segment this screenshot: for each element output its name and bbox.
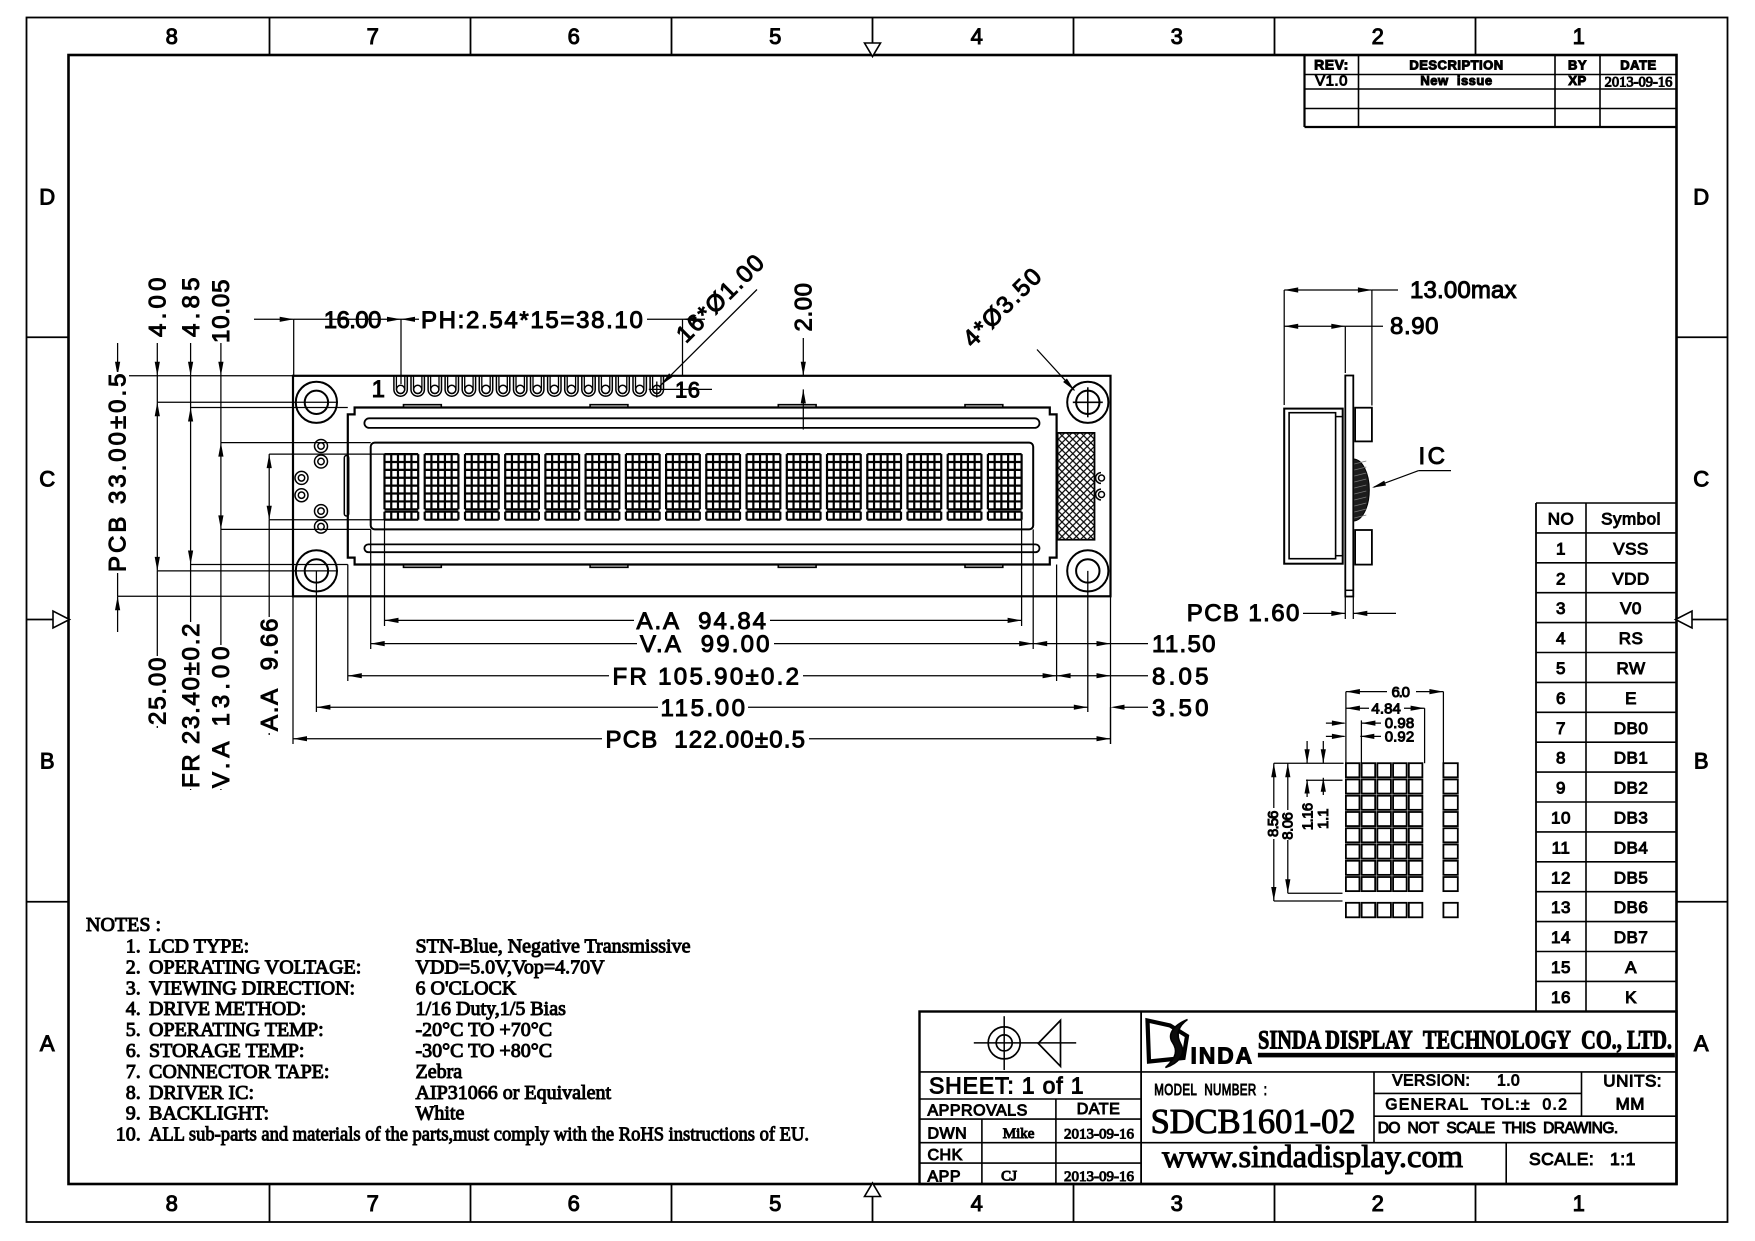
svg-text:IC: IC xyxy=(1419,443,1446,470)
svg-text:DB6: DB6 xyxy=(1614,898,1649,917)
svg-text:8: 8 xyxy=(166,1191,179,1216)
svg-text:Zebra: Zebra xyxy=(416,1061,463,1083)
svg-text:DRIVE METHOD:: DRIVE METHOD: xyxy=(149,998,306,1020)
svg-text:PCB 1.60: PCB 1.60 xyxy=(1187,600,1300,627)
svg-text:8.90: 8.90 xyxy=(1390,313,1439,340)
svg-text:7: 7 xyxy=(367,24,380,49)
svg-text:Mike: Mike xyxy=(1003,1126,1035,1142)
svg-text:K: K xyxy=(1625,988,1637,1007)
svg-text:8.06: 8.06 xyxy=(1279,812,1296,840)
svg-text:B: B xyxy=(1694,749,1709,774)
svg-text:DESCRIPTION: DESCRIPTION xyxy=(1409,58,1503,73)
svg-text:DB7: DB7 xyxy=(1614,928,1649,947)
svg-text:RW: RW xyxy=(1616,659,1645,678)
svg-text:A: A xyxy=(1694,1031,1709,1056)
svg-text:1: 1 xyxy=(1573,24,1586,49)
svg-text:5: 5 xyxy=(769,1191,782,1216)
svg-text:CHK: CHK xyxy=(928,1147,963,1164)
svg-text:DB1: DB1 xyxy=(1614,749,1649,768)
svg-text:3.: 3. xyxy=(126,977,141,999)
svg-text:5: 5 xyxy=(769,24,782,49)
svg-text:1/16 Duty,1/5 Bias: 1/16 Duty,1/5 Bias xyxy=(416,998,567,1020)
svg-text:1.0: 1.0 xyxy=(1497,1073,1520,1090)
svg-text:-20°C TO +70°C: -20°C TO +70°C xyxy=(416,1019,553,1041)
svg-text:16: 16 xyxy=(1551,988,1571,1007)
svg-text:STN-Blue, Negative Transmissiv: STN-Blue, Negative Transmissive xyxy=(416,936,691,958)
svg-text:3: 3 xyxy=(1171,1191,1184,1216)
svg-text:10.: 10. xyxy=(116,1124,141,1146)
svg-text:-30°C TO +80°C: -30°C TO +80°C xyxy=(416,1040,553,1062)
svg-text:DWN: DWN xyxy=(928,1126,968,1143)
svg-text:VDD=5.0V,Vop=4.70V: VDD=5.0V,Vop=4.70V xyxy=(416,956,606,978)
svg-text:11.50: 11.50 xyxy=(1152,631,1216,658)
svg-text:DO NOT SCALE THIS DRAWING.: DO NOT SCALE THIS DRAWING. xyxy=(1378,1120,1619,1137)
svg-text:6: 6 xyxy=(568,1191,581,1216)
svg-text:C: C xyxy=(1693,466,1709,491)
svg-text:VSS: VSS xyxy=(1613,539,1649,558)
svg-text:GENERAL TOL:± 0.2: GENERAL TOL:± 0.2 xyxy=(1385,1096,1567,1113)
svg-text:FR 23.40±0.2: FR 23.40±0.2 xyxy=(178,623,205,788)
svg-text:1.: 1. xyxy=(126,936,141,958)
svg-text:13: 13 xyxy=(1551,898,1571,917)
svg-text:9.: 9. xyxy=(126,1103,141,1125)
svg-text:VDD: VDD xyxy=(1612,569,1649,588)
svg-text:V0: V0 xyxy=(1620,599,1642,618)
svg-text:APP: APP xyxy=(928,1169,962,1186)
svg-text:3: 3 xyxy=(1171,24,1184,49)
svg-text:RS: RS xyxy=(1619,629,1644,648)
svg-text:15: 15 xyxy=(1551,958,1571,977)
svg-text:5: 5 xyxy=(1556,659,1566,678)
svg-text:6.: 6. xyxy=(126,1040,141,1062)
svg-text:7: 7 xyxy=(1556,719,1566,738)
svg-text:6.0: 6.0 xyxy=(1392,684,1411,701)
svg-text:8: 8 xyxy=(1556,749,1566,768)
svg-text:12: 12 xyxy=(1551,868,1571,887)
svg-text:DB4: DB4 xyxy=(1614,838,1649,857)
svg-text:11: 11 xyxy=(1552,838,1571,857)
svg-text:4: 4 xyxy=(971,24,984,49)
svg-text:A: A xyxy=(1625,958,1637,977)
svg-text:V.A 13.00: V.A 13.00 xyxy=(208,646,235,788)
svg-text:B: B xyxy=(40,749,55,774)
svg-text:6: 6 xyxy=(1556,689,1566,708)
svg-text:2.00: 2.00 xyxy=(791,283,818,332)
svg-text:White: White xyxy=(416,1103,465,1125)
svg-text:A: A xyxy=(40,1031,55,1056)
svg-text:MM: MM xyxy=(1616,1094,1645,1113)
svg-text:1:1: 1:1 xyxy=(1610,1149,1636,1169)
svg-text:A.A 9.66: A.A 9.66 xyxy=(256,618,283,731)
svg-text:9: 9 xyxy=(1556,779,1566,798)
svg-text:New issue: New issue xyxy=(1420,73,1492,88)
svg-text:2: 2 xyxy=(1372,24,1385,49)
svg-text:2013-09-16: 2013-09-16 xyxy=(1064,1127,1134,1143)
svg-text:4: 4 xyxy=(971,1191,984,1216)
svg-text:APPROVALS: APPROVALS xyxy=(928,1103,1028,1120)
svg-text:2013-09-16: 2013-09-16 xyxy=(1064,1169,1134,1185)
svg-text:SCALE:: SCALE: xyxy=(1529,1149,1594,1169)
svg-text:1.1: 1.1 xyxy=(1315,808,1332,829)
svg-text:6: 6 xyxy=(568,24,581,49)
svg-text:DB2: DB2 xyxy=(1614,779,1649,798)
svg-text:VERSION:: VERSION: xyxy=(1392,1073,1470,1090)
svg-text:0.92: 0.92 xyxy=(1385,729,1415,746)
svg-text:INDA: INDA xyxy=(1191,1043,1254,1069)
svg-text:AIP31066 or Equivalent: AIP31066 or Equivalent xyxy=(416,1082,612,1104)
svg-text:10.05: 10.05 xyxy=(208,279,235,343)
svg-text:DATE: DATE xyxy=(1620,58,1656,73)
svg-text:4.: 4. xyxy=(126,998,141,1020)
svg-text:5.: 5. xyxy=(126,1019,141,1041)
svg-text:8.: 8. xyxy=(126,1082,141,1104)
svg-text:BACKLIGHT:: BACKLIGHT: xyxy=(149,1103,269,1125)
svg-text:OPERATING VOLTAGE:: OPERATING VOLTAGE: xyxy=(149,956,361,978)
svg-text:13.00max: 13.00max xyxy=(1410,277,1517,304)
svg-text:4.00: 4.00 xyxy=(145,277,172,337)
svg-text:NOTES :: NOTES : xyxy=(86,914,161,936)
svg-text:PCB 122.00±0.5: PCB 122.00±0.5 xyxy=(606,726,806,753)
svg-text:1: 1 xyxy=(372,376,386,403)
svg-text:Symbol: Symbol xyxy=(1601,510,1661,529)
svg-text:7.: 7. xyxy=(126,1061,141,1083)
svg-text:FR 105.90±0.2: FR 105.90±0.2 xyxy=(613,663,800,690)
svg-text:4: 4 xyxy=(1556,629,1566,648)
svg-text:DB0: DB0 xyxy=(1614,719,1649,738)
svg-text:8.05: 8.05 xyxy=(1152,663,1209,690)
svg-text:SHEET: 1 of 1: SHEET: 1 of 1 xyxy=(929,1073,1084,1099)
svg-text:16.00: 16.00 xyxy=(324,307,382,334)
svg-text:MODEL NUMBER :: MODEL NUMBER : xyxy=(1154,1082,1267,1099)
svg-text:3: 3 xyxy=(1556,599,1566,618)
svg-text:V.A 99.00: V.A 99.00 xyxy=(640,631,770,658)
svg-text:D: D xyxy=(1693,185,1709,210)
svg-text:E: E xyxy=(1625,689,1637,708)
svg-text:UNITS:: UNITS: xyxy=(1603,1072,1662,1091)
svg-text:2: 2 xyxy=(1372,1191,1385,1216)
svg-text:DRIVER IC:: DRIVER IC: xyxy=(149,1082,254,1104)
svg-text:1: 1 xyxy=(1556,539,1566,558)
svg-text:C: C xyxy=(39,466,55,491)
svg-text:CJ: CJ xyxy=(1001,1168,1017,1184)
svg-text:DB3: DB3 xyxy=(1614,809,1649,828)
svg-text:8: 8 xyxy=(166,24,179,49)
svg-text:www.sindadisplay.com: www.sindadisplay.com xyxy=(1162,1138,1463,1174)
svg-text:3.50: 3.50 xyxy=(1152,695,1209,722)
svg-text:V1.0: V1.0 xyxy=(1315,73,1348,90)
svg-text:SINDA DISPLAY TECHNOLOGY CO.: SINDA DISPLAY TECHNOLOGY CO., LTD. xyxy=(1258,1026,1672,1055)
svg-text:PH:2.54*15=38.10: PH:2.54*15=38.10 xyxy=(421,307,643,334)
svg-text:4.85: 4.85 xyxy=(178,277,205,337)
svg-text:2: 2 xyxy=(1556,569,1566,588)
svg-text:6 O'CLOCK: 6 O'CLOCK xyxy=(416,977,517,999)
svg-text:1.16: 1.16 xyxy=(1299,802,1316,830)
svg-text:DATE: DATE xyxy=(1077,1101,1120,1118)
svg-text:10: 10 xyxy=(1551,809,1571,828)
svg-text:14: 14 xyxy=(1551,928,1571,947)
svg-text:BY: BY xyxy=(1568,58,1587,73)
svg-text:2.: 2. xyxy=(126,956,141,978)
svg-text:REV:: REV: xyxy=(1314,57,1349,73)
svg-text:VIEWING DIRECTION:: VIEWING DIRECTION: xyxy=(149,977,355,999)
svg-text:25.00: 25.00 xyxy=(145,657,172,725)
svg-text:DB5: DB5 xyxy=(1614,868,1649,887)
svg-text:LCD TYPE:: LCD TYPE: xyxy=(149,936,249,958)
svg-text:1: 1 xyxy=(1573,1191,1586,1216)
svg-text:STORAGE TEMP:: STORAGE TEMP: xyxy=(149,1040,304,1062)
svg-text:XP: XP xyxy=(1568,73,1586,88)
svg-text:7: 7 xyxy=(367,1191,380,1216)
svg-text:SDCB1601-02: SDCB1601-02 xyxy=(1151,1102,1356,1141)
svg-text:OPERATING TEMP:: OPERATING TEMP: xyxy=(149,1019,324,1041)
svg-text:D: D xyxy=(39,185,55,210)
svg-text:2013-09-16: 2013-09-16 xyxy=(1605,75,1673,91)
svg-text:CONNECTOR TAPE:: CONNECTOR TAPE: xyxy=(149,1061,329,1083)
svg-text:ALL sub-parts and materials of: ALL sub-parts and materials of the parts… xyxy=(149,1124,809,1146)
svg-text:16: 16 xyxy=(675,378,700,403)
svg-text:NO: NO xyxy=(1548,510,1575,529)
